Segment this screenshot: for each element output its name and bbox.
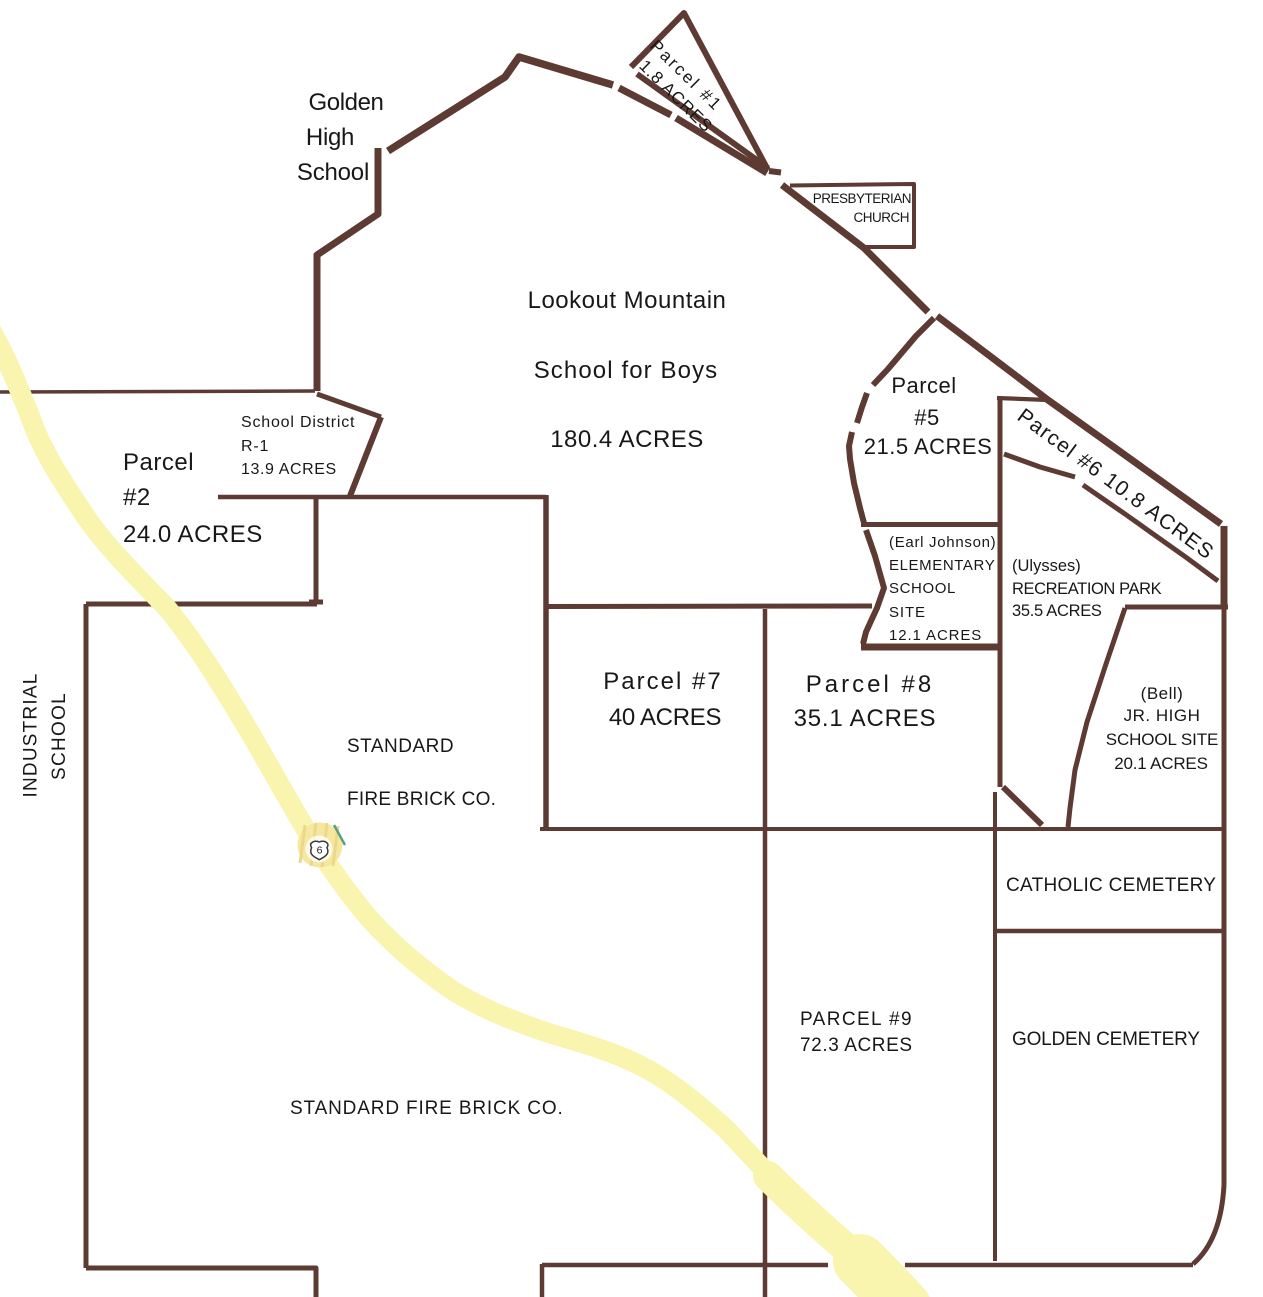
svg-text:High: High (306, 124, 354, 151)
svg-text:School: School (297, 159, 369, 186)
svg-text:STANDARD FIRE BRICK CO.: STANDARD FIRE BRICK CO. (290, 1098, 564, 1119)
svg-text:40 ACRES: 40 ACRES (609, 704, 721, 731)
svg-text:Golden: Golden (309, 89, 384, 116)
svg-text:Lookout Mountain: Lookout Mountain (528, 287, 727, 314)
svg-text:CHURCH: CHURCH (854, 210, 910, 225)
svg-text:Parcel: Parcel (891, 373, 956, 398)
svg-text:35.1 ACRES: 35.1 ACRES (794, 705, 937, 732)
svg-text:RECREATION PARK: RECREATION PARK (1012, 580, 1162, 598)
svg-text:(Bell): (Bell) (1141, 684, 1184, 703)
svg-text:Parcel #8: Parcel #8 (806, 671, 934, 698)
svg-text:PRESBYTERIAN: PRESBYTERIAN (813, 191, 911, 206)
svg-text:Parcel #7: Parcel #7 (603, 668, 722, 695)
svg-text:6: 6 (317, 845, 323, 857)
svg-text:School for Boys: School for Boys (534, 357, 719, 384)
svg-text:21.5 ACRES: 21.5 ACRES (864, 434, 993, 459)
svg-text:SCHOOL: SCHOOL (49, 692, 70, 780)
svg-text:JR. HIGH: JR. HIGH (1124, 706, 1201, 725)
svg-text:12.1 ACRES: 12.1 ACRES (889, 627, 982, 644)
svg-text:#2: #2 (123, 484, 151, 511)
svg-text:GOLDEN CEMETERY: GOLDEN CEMETERY (1012, 1029, 1200, 1050)
svg-text:Parcel: Parcel (123, 449, 194, 476)
svg-text:ELEMENTARY: ELEMENTARY (889, 557, 995, 574)
svg-text:PARCEL #9: PARCEL #9 (800, 1009, 913, 1030)
svg-text:(Ulysses): (Ulysses) (1012, 557, 1081, 575)
svg-text:180.4 ACRES: 180.4 ACRES (550, 426, 704, 453)
svg-text:72.3 ACRES: 72.3 ACRES (800, 1035, 913, 1056)
svg-text:FIRE BRICK CO.: FIRE BRICK CO. (347, 789, 496, 810)
svg-text:20.1 ACRES: 20.1 ACRES (1114, 754, 1207, 773)
svg-text:SITE: SITE (889, 604, 926, 621)
svg-text:STANDARD: STANDARD (347, 736, 454, 757)
svg-text:#5: #5 (914, 405, 939, 430)
svg-text:SCHOOL: SCHOOL (889, 580, 956, 597)
svg-text:SCHOOL SITE: SCHOOL SITE (1106, 730, 1219, 749)
svg-text:School District: School District (241, 414, 355, 431)
svg-text:(Earl Johnson): (Earl Johnson) (889, 534, 996, 551)
svg-text:R-1: R-1 (241, 438, 269, 455)
svg-text:24.0 ACRES: 24.0 ACRES (123, 521, 263, 548)
svg-text:INDUSTRIAL: INDUSTRIAL (21, 673, 42, 798)
svg-text:CATHOLIC CEMETERY: CATHOLIC CEMETERY (1006, 875, 1216, 896)
svg-text:35.5 ACRES: 35.5 ACRES (1012, 602, 1102, 620)
svg-text:13.9 ACRES: 13.9 ACRES (241, 461, 337, 478)
